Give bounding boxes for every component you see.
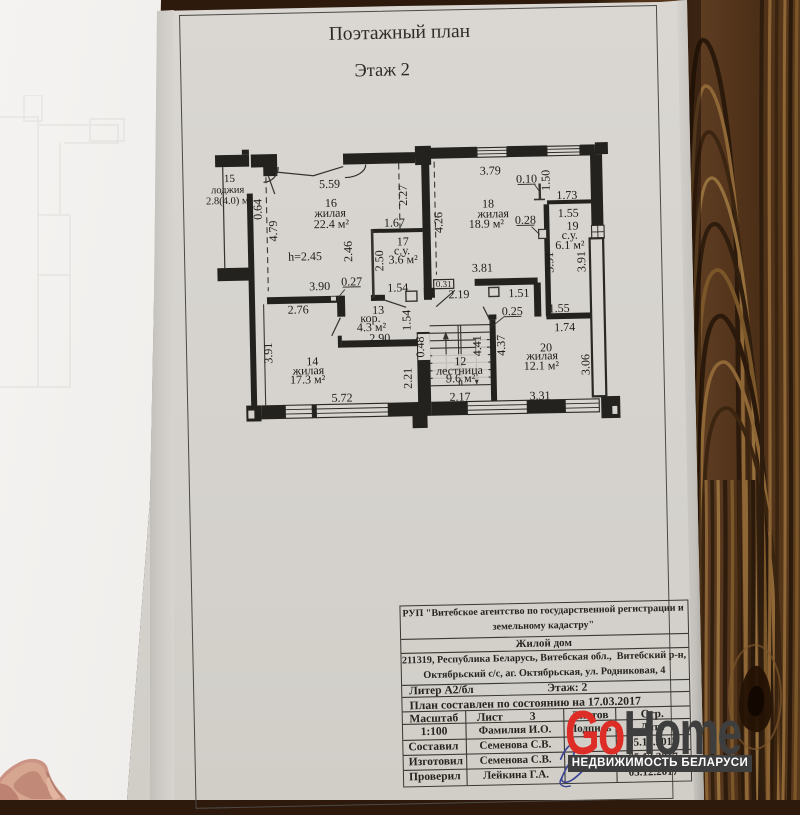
svg-text:1.51: 1.51 — [508, 286, 529, 300]
svg-text:0.27: 0.27 — [341, 274, 362, 288]
svg-text:2.90: 2.90 — [369, 331, 390, 345]
svg-text:3.91: 3.91 — [574, 251, 588, 272]
svg-text:0.10: 0.10 — [516, 172, 537, 186]
svg-text:1.74: 1.74 — [554, 320, 575, 334]
svg-text:0.25: 0.25 — [502, 304, 523, 318]
svg-text:2.8(4.0) м²: 2.8(4.0) м² — [206, 196, 252, 208]
svg-text:1.55: 1.55 — [558, 206, 579, 220]
svg-text:4.41: 4.41 — [470, 335, 484, 356]
svg-text:1.55: 1.55 — [549, 301, 570, 315]
svg-text:2.27: 2.27 — [396, 185, 410, 206]
svg-text:4.37: 4.37 — [494, 335, 508, 356]
svg-text:17.3 м²: 17.3 м² — [290, 372, 326, 387]
svg-text:4.79: 4.79 — [266, 220, 280, 241]
svg-text:0.48: 0.48 — [413, 336, 427, 357]
svg-text:6.1 м²: 6.1 м² — [555, 238, 585, 253]
svg-text:0.28: 0.28 — [515, 213, 536, 227]
svg-text:18.9 м²: 18.9 м² — [469, 216, 505, 231]
svg-text:1.50: 1.50 — [538, 170, 552, 191]
svg-text:2.21: 2.21 — [400, 368, 414, 389]
svg-text:4.26: 4.26 — [431, 212, 445, 233]
svg-text:1.54: 1.54 — [399, 310, 413, 331]
svg-text:22.4 м²: 22.4 м² — [314, 216, 350, 231]
svg-text:1.54: 1.54 — [387, 280, 408, 294]
svg-text:3.81: 3.81 — [472, 260, 493, 274]
svg-text:3.6 м²: 3.6 м² — [388, 252, 418, 267]
svg-text:3.79: 3.79 — [480, 163, 501, 177]
svg-text:2.50: 2.50 — [372, 250, 386, 271]
svg-text:12.1 м²: 12.1 м² — [524, 358, 560, 373]
svg-text:2.17: 2.17 — [449, 389, 470, 403]
svg-text:0.64: 0.64 — [250, 199, 264, 220]
svg-text:3.91: 3.91 — [542, 252, 556, 273]
svg-text:лоджия: лоджия — [211, 185, 245, 197]
svg-text:15: 15 — [224, 173, 236, 185]
svg-text:2.46: 2.46 — [341, 241, 355, 262]
svg-text:3.90: 3.90 — [309, 279, 330, 293]
svg-text:2.19: 2.19 — [448, 287, 469, 301]
svg-text:2.76: 2.76 — [288, 302, 309, 316]
svg-text:1.67: 1.67 — [384, 215, 405, 229]
svg-text:5.72: 5.72 — [331, 390, 352, 404]
svg-text:5.59: 5.59 — [319, 177, 340, 191]
svg-text:9.6 м²: 9.6 м² — [446, 371, 476, 386]
svg-text:h=2.45: h=2.45 — [288, 249, 322, 264]
svg-text:3.91: 3.91 — [261, 343, 275, 364]
svg-text:3.31: 3.31 — [529, 388, 550, 402]
svg-text:3.06: 3.06 — [578, 354, 592, 375]
svg-text:1.73: 1.73 — [556, 188, 577, 202]
